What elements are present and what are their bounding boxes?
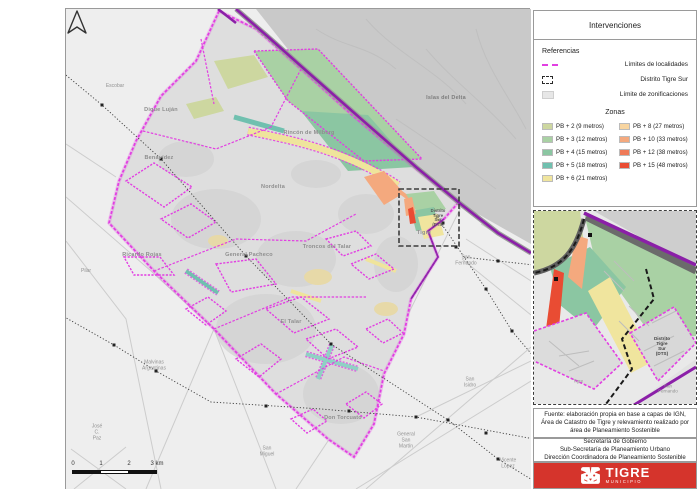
locality-line-swatch (542, 64, 558, 66)
source-note: Fuente: elaboración propia en base a cap… (533, 408, 697, 438)
scale-bar-rule (72, 470, 157, 474)
zone-swatch (619, 162, 630, 169)
zone-label: PB + 2 (9 metros) (556, 123, 604, 130)
zonas-col2: PB + 8 (27 metros) PB + 10 (33 metros) P… (619, 123, 688, 188)
legend-title: Intervenciones (534, 11, 696, 40)
zone-row: PB + 3 (12 metros) (542, 136, 619, 143)
label-el-talar: El Talar (280, 319, 301, 325)
zone-row: PB + 12 (38 metros) (619, 149, 688, 156)
brand-name: TIGRE (606, 466, 651, 479)
label-benavidez: Benavídez (144, 155, 173, 161)
legend-row-localidades: Límites de localidades (542, 60, 688, 69)
legend-label: Distrito Tigre Sur (640, 76, 688, 83)
zone-label: PB + 12 (38 metros) (633, 149, 688, 156)
zone-label: PB + 4 (15 metros) (556, 149, 607, 156)
zone-label: PB + 3 (12 metros) (556, 136, 607, 143)
district-outline-swatch (542, 76, 553, 84)
zone-swatch (619, 123, 630, 130)
zone-row: PB + 15 (48 metros) (619, 162, 688, 169)
label-escobar: Escobar (106, 84, 124, 90)
scale-bar-labels: 0 1 2 3 km (72, 461, 168, 469)
map-canvas (66, 9, 531, 489)
zone-label: PB + 15 (48 metros) (633, 162, 688, 169)
label-malvinas-argentinas: Malvinas Argentinas (142, 360, 166, 372)
zone-row: PB + 8 (27 metros) (619, 123, 688, 130)
scale-tick-2: 2 (127, 461, 130, 467)
legend-body: Referencias Límites de localidades Distr… (534, 40, 696, 188)
label-tigre: Tigre (417, 230, 431, 236)
zone-row: PB + 6 (21 metros) (542, 175, 619, 182)
label-nordelta: Nordelta (261, 184, 285, 190)
zone-label: PB + 10 (33 metros) (633, 136, 688, 143)
zone-row: PB + 5 (18 metros) (542, 162, 619, 169)
inset-map: Distrito Tigre Sur (DTS) San Fernando Ti… (533, 210, 697, 405)
source-note-text: Fuente: elaboración propia en base a cap… (540, 411, 690, 435)
zone-row: PB + 10 (33 metros) (619, 136, 688, 143)
zone-swatch (619, 136, 630, 143)
credit-line-3: Dirección Coordinadora de Planeamiento S… (544, 454, 686, 462)
label-general-pacheco: General Pacheco (225, 252, 273, 258)
zone-swatch (542, 162, 553, 169)
label-don-torcuato: Don Torcuato (324, 415, 362, 421)
zone-swatch (542, 136, 553, 143)
legend-label: Límites de localidades (625, 61, 688, 68)
zonas-heading: Zonas (542, 109, 688, 116)
brand-text: TIGRE MUNICIPIO (606, 466, 651, 484)
scale-seg-2 (101, 471, 129, 473)
label-san-miguel: San Miguel (260, 446, 275, 458)
label-general-san-martin: General San Martín (397, 432, 415, 449)
zone-row: PB + 2 (9 metros) (542, 123, 619, 130)
zone-label: PB + 6 (21 metros) (556, 175, 607, 182)
footer-brand: TIGRE MUNICIPIO (533, 462, 697, 489)
inset-label-san-fernando: San Fernando (658, 384, 678, 395)
inset-canvas (534, 211, 696, 404)
zone-label: PB + 5 (18 metros) (556, 162, 607, 169)
brand-subtitle: MUNICIPIO (606, 480, 651, 484)
zone-label: PB + 8 (27 metros) (633, 123, 684, 130)
zonas-columns: PB + 2 (9 metros) PB + 3 (12 metros) PB … (542, 123, 688, 188)
legend-row-distrito: Distrito Tigre Sur (542, 75, 688, 84)
label-islas-del-delta: Islas del Delta (426, 95, 466, 101)
scale-tick-1: 1 (99, 461, 102, 467)
credit-line-2: Sub-Secretaría de Planeamiento Urbano (560, 446, 670, 454)
scale-seg-3 (128, 471, 156, 473)
scale-seg-1 (73, 471, 101, 473)
label-ricardo-rojas: Ricardo Rojas (122, 252, 162, 258)
zonification-swatch (542, 91, 554, 99)
referencias-heading: Referencias (542, 48, 688, 55)
credit-line-1: Secretaría de Gobierno (583, 438, 646, 446)
label-rincon-de-milberg: Rincón de Milberg (283, 130, 334, 136)
credits: Secretaría de Gobierno Sub-Secretaría de… (533, 438, 697, 462)
inset-label-distrito-tigre-sur: Distrito Tigre Sur (DTS) (654, 336, 670, 356)
scale-tick-3: 3 km (150, 461, 163, 467)
label-dique-lujan: Dique Luján (144, 107, 178, 113)
main-map: Dique Luján Benavídez Rincón de Milberg … (65, 8, 530, 489)
label-san-isidro: San Isidro (464, 377, 476, 389)
label-distrito-tigre-sur: Distrito Tigre Sur (DTS) (431, 209, 446, 227)
legend-row-zonificaciones: Límite de zonificaciones (542, 90, 688, 99)
label-san-fernando: San Fernando (455, 255, 476, 267)
label-pilar: Pilar (81, 269, 91, 275)
label-vicente-lopez: Vicente López (500, 458, 517, 470)
north-arrow-icon (66, 9, 88, 35)
label-troncos-del-talar: Troncos del Talar (303, 244, 352, 250)
legend-label: Límite de zonificaciones (620, 91, 688, 98)
label-jose-c-paz: José C. Paz (92, 424, 103, 441)
page: Dique Luján Benavídez Rincón de Milberg … (0, 0, 700, 495)
zone-swatch (542, 149, 553, 156)
zone-row: PB + 4 (15 metros) (542, 149, 619, 156)
zone-swatch (619, 149, 630, 156)
zonas-col1: PB + 2 (9 metros) PB + 3 (12 metros) PB … (542, 123, 619, 188)
zone-swatch (542, 175, 553, 182)
zone-swatch (542, 123, 553, 130)
tigre-logo-icon (580, 465, 601, 486)
scale-bar: 0 1 2 3 km (72, 461, 168, 474)
legend-panel: Intervenciones Referencias Límites de lo… (533, 10, 697, 207)
inset-label-tigre: Tigre (573, 378, 583, 383)
scale-tick-0: 0 (71, 461, 74, 467)
